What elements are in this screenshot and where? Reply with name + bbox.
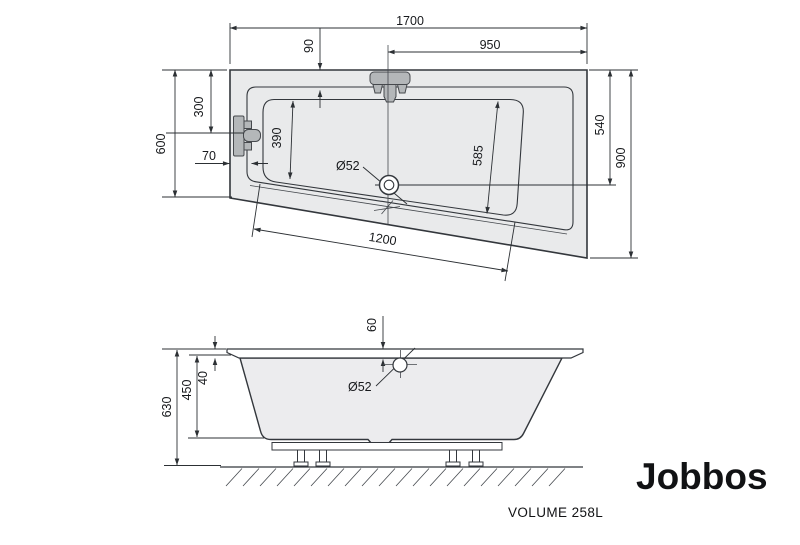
drain-symbol-side <box>393 358 407 372</box>
footer-labels: VOLUME 258L Jobbos <box>508 456 768 520</box>
side-view: 630 450 40 60 Ø52 <box>160 316 583 486</box>
bathtub-technical-drawing: 1700 950 90 300 600 70 390 585 540 900 1… <box>0 0 800 545</box>
dim-basin-left-width-label: 390 <box>270 128 284 149</box>
dim-drain-offset-label: 60 <box>365 318 379 332</box>
volume-label: VOLUME 258L <box>508 505 603 520</box>
top-view: 1700 950 90 300 600 70 390 585 540 900 1… <box>154 14 638 281</box>
dim-tub-depth-label: 450 <box>180 380 194 401</box>
dim-drain-from-top-label: 540 <box>593 115 607 136</box>
dim-total-height-label: 630 <box>160 397 174 418</box>
dim-bottom-edge-length-label: 1200 <box>368 230 398 248</box>
dim-left-side-width-label: 600 <box>154 134 168 155</box>
support-panel <box>272 443 502 451</box>
tub-rim-side <box>227 349 583 358</box>
dim-center-to-right-label: 950 <box>480 38 501 52</box>
dim-right-side-width-label: 900 <box>614 148 628 169</box>
dim-rim-thickness-label: 40 <box>196 371 210 385</box>
dim-corner-offset-label: 70 <box>202 149 216 163</box>
tub-outline-top <box>230 70 587 258</box>
dim-rim-inset-label: 90 <box>302 39 316 53</box>
drain-symbol-top <box>380 176 399 195</box>
dim-basin-right-width-label: 585 <box>470 145 486 167</box>
technical-drawing-page: 1700 950 90 300 600 70 390 585 540 900 1… <box>0 0 800 545</box>
ground-hatching <box>226 469 565 487</box>
product-name: Jobbos <box>636 456 768 497</box>
dim-overall-length-label: 1700 <box>396 14 424 28</box>
drain-diameter-label-side: Ø52 <box>348 380 372 394</box>
adjustable-feet <box>294 450 483 466</box>
dim-overflow-from-top-label: 300 <box>192 97 206 118</box>
drain-diameter-label-top: Ø52 <box>336 159 360 173</box>
